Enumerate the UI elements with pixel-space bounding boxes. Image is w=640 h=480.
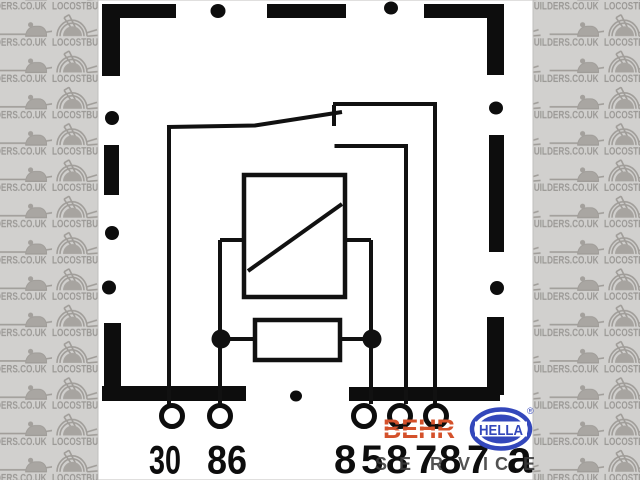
svg-text:HELLA: HELLA xyxy=(479,423,523,439)
svg-text:30: 30 xyxy=(149,439,181,480)
svg-text:86: 86 xyxy=(207,439,247,480)
svg-text:®: ® xyxy=(527,406,534,416)
